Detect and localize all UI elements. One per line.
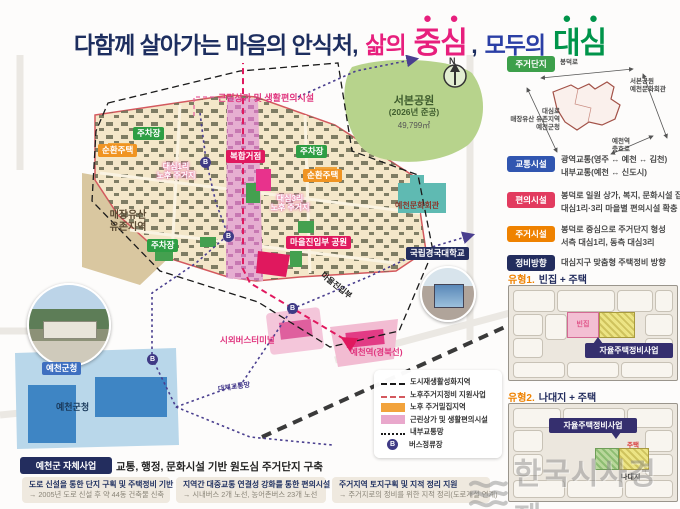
legend-swatch-dash: [381, 383, 405, 385]
bottom-box-transit-title: 지역간 대중교통 연결성 강화를 통한 편의시설 접근성 개선: [183, 480, 319, 490]
minimap-label-right: 서본공원 예천문화회관: [630, 78, 666, 94]
bottom-box-road-title: 도로 신설을 통한 단지 구획 및 주택정비 기반 마련: [29, 480, 163, 490]
old-area1-label: 대심1리 노후 주거지: [148, 162, 204, 180]
type1-heading: 유형1.빈집 + 주택: [508, 271, 587, 286]
bus-stop-icon-4: B: [147, 354, 158, 365]
parking-label-3: 주차장: [147, 239, 178, 252]
convenience-line2: 대심1리·3리 마을별 편의시설 확충: [561, 202, 680, 215]
legend-label-oldhousing: 노후 주거밀집지역: [410, 402, 466, 412]
type2-house-note: 주택: [627, 439, 639, 449]
parking-label-1: 주차장: [133, 127, 164, 140]
transport-text: 광역교통(영주 ↔ 예천 ↔ 김천) 내부교통(예천 ↔ 신도시): [561, 153, 667, 179]
county-office-photo-label: 예천군청: [42, 362, 81, 375]
legend-swatch-dotted: [381, 433, 405, 435]
county-office-photo-building: [43, 321, 97, 339]
badge-transport: 교통시설: [507, 156, 555, 172]
mixed-hub-label: 복합거점: [226, 150, 265, 163]
entry-park-shape: [256, 251, 290, 277]
parcel: [557, 290, 615, 312]
corridor-callout-label: 근린상가 및 생활편의시설: [218, 91, 314, 104]
legend-label-busstop: 버스정류장: [409, 440, 443, 450]
circular-housing-label-1: 순환주택: [98, 144, 137, 157]
self-project-heading: 교통, 행정, 문화시설 기반 원도심 주거단지 구축: [116, 459, 323, 474]
minimap-station-line1: 예천역: [612, 138, 630, 146]
legend-label-commercial: 근린상가 및 생활편의시설: [410, 415, 488, 425]
minimap-label-bongdeokro: 봉덕로: [560, 59, 578, 67]
university-photo-building: [434, 284, 464, 308]
minimap-right-line2: 예천문화회관: [630, 86, 666, 94]
old-area1-line1: 대심1리: [148, 162, 204, 171]
transport-line2: 내부교통(예천 ↔ 신도시): [561, 166, 667, 179]
convenience-line1: 봉덕로 일원 상가, 복지, 문화시설 집중: [561, 189, 680, 202]
legend-row-regeneration: 도시재생활성화지역: [381, 376, 495, 389]
legend-row-oldhousing: 노후 주거밀집지역: [381, 401, 495, 414]
entry-park-label: 마을진입부 공원: [286, 236, 351, 249]
bottom-box-transit-detail: → 시내버스 2개 노선, 농어촌버스 23개 노선: [183, 490, 319, 500]
bus-stop-icon-2: B: [223, 231, 234, 242]
legend-label-transport: 내부교통망: [410, 427, 444, 437]
bottom-box-land-title: 주거지역 토지구획 및 지적 정리 지원: [339, 480, 483, 490]
type2-tag-label: 자율주택정비사업: [564, 421, 623, 430]
north-label: N: [449, 56, 456, 66]
type1-empty-house-cell: 빈집: [567, 312, 599, 338]
badge-direction: 정비방향: [507, 255, 555, 271]
heritage-label-line1: 매장유산: [98, 210, 158, 222]
tag-pointer: [593, 337, 603, 344]
tag-pointer: [611, 432, 621, 439]
convenience-text: 봉덕로 일원 상가, 복지, 문화시설 집중 대심1리·3리 마을별 편의시설 …: [561, 189, 680, 215]
parcel: [513, 338, 543, 358]
minimap-label-left: 대심로 매장유산 유존지역 예천군청: [506, 108, 560, 132]
bottom-box-road: 도로 신설을 통한 단지 구획 및 주택정비 기반 마련 → 2005년 도로 …: [22, 477, 170, 503]
bottom-box-land: 주거지역 토지구획 및 지적 정리 지원 → 주거지로의 정비를 위한 지적 정…: [332, 477, 490, 503]
legend-row-commercial: 근린상가 및 생활편의시설: [381, 414, 495, 427]
hub-building: [256, 169, 271, 191]
bottom-box-transit: 지역간 대중교통 연결성 강화를 통한 편의시설 접근성 개선 → 시내버스 2…: [176, 477, 326, 503]
legend-swatch-orange: [381, 403, 405, 412]
housing-text: 봉덕로 중심으로 주거단지 형성 서측 대심1리, 동측 대심3리: [561, 223, 666, 249]
bottom-box-land-detail: → 주거지로의 정비를 위한 지적 정리(도로개설 연계): [339, 490, 483, 500]
old-area1-line2: 노후 주거지: [148, 171, 204, 180]
bus-terminal-label: 시외버스터미널: [220, 334, 275, 346]
legend-label-support: 노후주거지정비 지원사업: [410, 390, 486, 400]
infographic-canvas: 다함께 살아가는 마음의 안식처, 삶의 중심 , 모두의 대심: [0, 0, 680, 509]
minimap-left-line3: 예천군청: [506, 124, 560, 132]
self-project-badge: 예천군 자체사업: [20, 457, 112, 474]
badge-housing: 주거시설: [507, 226, 555, 242]
legend-row-support: 노후주거지정비 지원사업: [381, 389, 495, 402]
direction-line1: 대심지구 맞춤형 주택정비 방향: [561, 256, 666, 269]
parking-label-2: 주차장: [296, 145, 327, 158]
heritage-label: 매장유산 유존지역: [98, 210, 158, 234]
minimap-right-line1: 서본공원: [630, 78, 666, 86]
minimap-left-line1: 대심로: [506, 108, 560, 116]
parcel: [513, 314, 543, 336]
minimap-label-station: 예천역 충효로: [612, 138, 630, 154]
watermark-wave-icon: [468, 475, 509, 509]
legend-swatch-pinkdash: [381, 396, 405, 398]
parcel: [545, 314, 567, 340]
type2-project-tag: 자율주택정비사업: [549, 418, 637, 433]
transport-line1: 광역교통(영주 ↔ 예천 ↔ 김천): [561, 153, 667, 166]
legend-bus-icon: B: [387, 439, 398, 450]
heritage-label-line2: 유존지역: [98, 222, 158, 234]
culture-hall-label: 예천문화회관: [395, 200, 439, 211]
circular-housing-label-2: 순환주택: [303, 169, 342, 182]
parcel: [567, 362, 619, 378]
old-area2-line1: 대심3리: [262, 194, 318, 203]
type1-diagram: 빈집 자율주택정비사업: [508, 285, 678, 381]
park-area-label: 49,799㎡: [382, 120, 446, 131]
legend-swatch-pink: [381, 415, 405, 424]
badge-convenience: 편의시설: [507, 192, 555, 208]
parcel: [655, 290, 673, 312]
university-label: 국립경국대학교: [406, 247, 469, 260]
watermark: 한국시사경제: [468, 449, 680, 509]
university-photo: [420, 266, 476, 322]
watermark-text: 한국시사경제: [514, 449, 680, 509]
legend-row-transport: 내부교통망: [381, 426, 495, 439]
parcel: [513, 362, 565, 378]
title-daesim: 대심: [553, 10, 606, 62]
parcel: [621, 362, 673, 378]
park-completion-label: (2026년 준공): [382, 106, 446, 118]
type1-hatched-cell: [599, 312, 635, 338]
old-area2-label: 대심3리 노후 주거지: [262, 194, 318, 212]
housing-line1: 봉덕로 중심으로 주거단지 형성: [561, 223, 666, 236]
station-label: 예천역(경북선): [350, 346, 403, 358]
old-area2-line2: 노후 주거지: [262, 203, 318, 212]
parcel: [617, 290, 653, 312]
parcel: [513, 290, 555, 312]
parcel: [645, 314, 673, 336]
bus-stop-icon-1: B: [200, 157, 211, 168]
minimap-district-outline: [553, 82, 620, 130]
minimap-left-line2: 매장유산 유존지역: [506, 116, 560, 124]
bus-stop-icon-3: B: [287, 303, 298, 314]
county-office-photo: [27, 283, 111, 367]
type2-heading: 유형2.나대지 + 주택: [508, 389, 596, 404]
county-office-area-label: 예천군청: [56, 400, 89, 413]
map-legend: 도시재생활성화지역 노후주거지정비 지원사업 노후 주거밀집지역 근린상가 및 …: [374, 370, 502, 458]
direction-text: 대심지구 맞춤형 주택정비 방향: [561, 256, 666, 269]
bottom-box-road-detail: → 2005년 도로 신설 후 약 44동 건축물 신축: [29, 490, 163, 500]
type1-tag-label: 자율주택정비사업: [600, 346, 659, 355]
type1-project-tag: 자율주택정비사업: [585, 343, 673, 358]
legend-label-regeneration: 도시재생활성화지역: [410, 377, 470, 387]
housing-line2: 서측 대심1리, 동측 대심3리: [561, 236, 666, 249]
